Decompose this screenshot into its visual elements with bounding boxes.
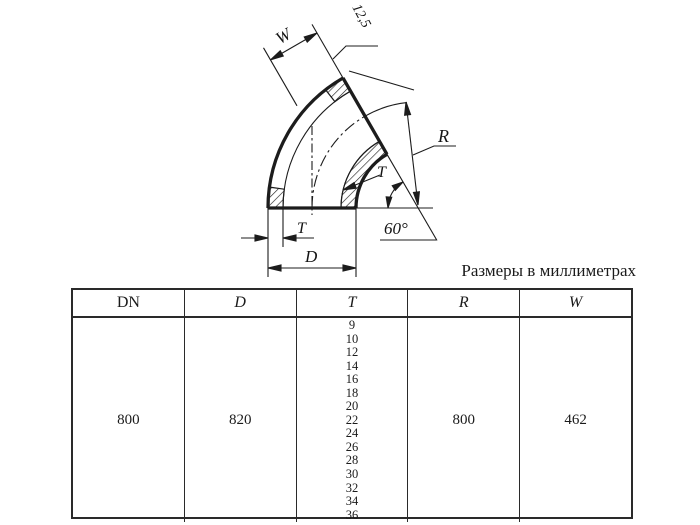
roughness-check-icon: [333, 46, 378, 59]
r-label: R: [437, 126, 449, 146]
t-section-label: T: [377, 164, 387, 181]
cell-dn: 800: [73, 318, 185, 522]
cell-t-values: 91012141618202224262830323436: [297, 318, 409, 522]
arrowhead: [255, 235, 268, 241]
t-label: T: [297, 220, 307, 237]
r-dimension: [403, 102, 456, 206]
d-label: D: [304, 247, 318, 266]
centerline-arc-extension: [365, 103, 407, 117]
face-corner-projection: [349, 71, 414, 90]
cell-d: 820: [185, 318, 297, 522]
elbow-outline: [268, 78, 387, 208]
header-w: W: [520, 290, 631, 316]
elbow-60deg-drawing: W 12,5 R T 60°: [0, 0, 700, 288]
arrowhead: [403, 102, 411, 116]
roughness-label: 12,5: [348, 2, 373, 31]
cell-r: 800: [408, 318, 520, 522]
arrowhead: [343, 265, 356, 271]
header-dn: DN: [73, 290, 185, 316]
w-label: W: [272, 24, 295, 48]
header-r: R: [408, 290, 520, 316]
angle-label: 60°: [384, 219, 408, 238]
cell-w: 462: [520, 318, 631, 522]
arrowhead: [283, 235, 296, 241]
header-d: D: [185, 290, 297, 316]
arrowhead: [268, 265, 281, 271]
table-row: 800 820 91012141618202224262830323436 80…: [73, 318, 631, 522]
table-header-row: DN D T R W: [73, 290, 631, 318]
arrowhead: [413, 192, 421, 206]
dimensions-table: DN D T R W 800 820 910121416182022242628…: [71, 288, 633, 519]
section-hatching: [268, 78, 387, 208]
inclined-face-extension-upper: [312, 24, 343, 78]
arrowhead: [385, 197, 392, 208]
standard-drawing-page: W 12,5 R T 60°: [0, 0, 700, 525]
roughness-mark: [333, 46, 378, 59]
header-t: T: [297, 290, 409, 316]
r-leader: [413, 146, 456, 155]
bore-outer-arc: [283, 91, 351, 208]
units-caption: Размеры в миллиметрах: [461, 261, 636, 281]
